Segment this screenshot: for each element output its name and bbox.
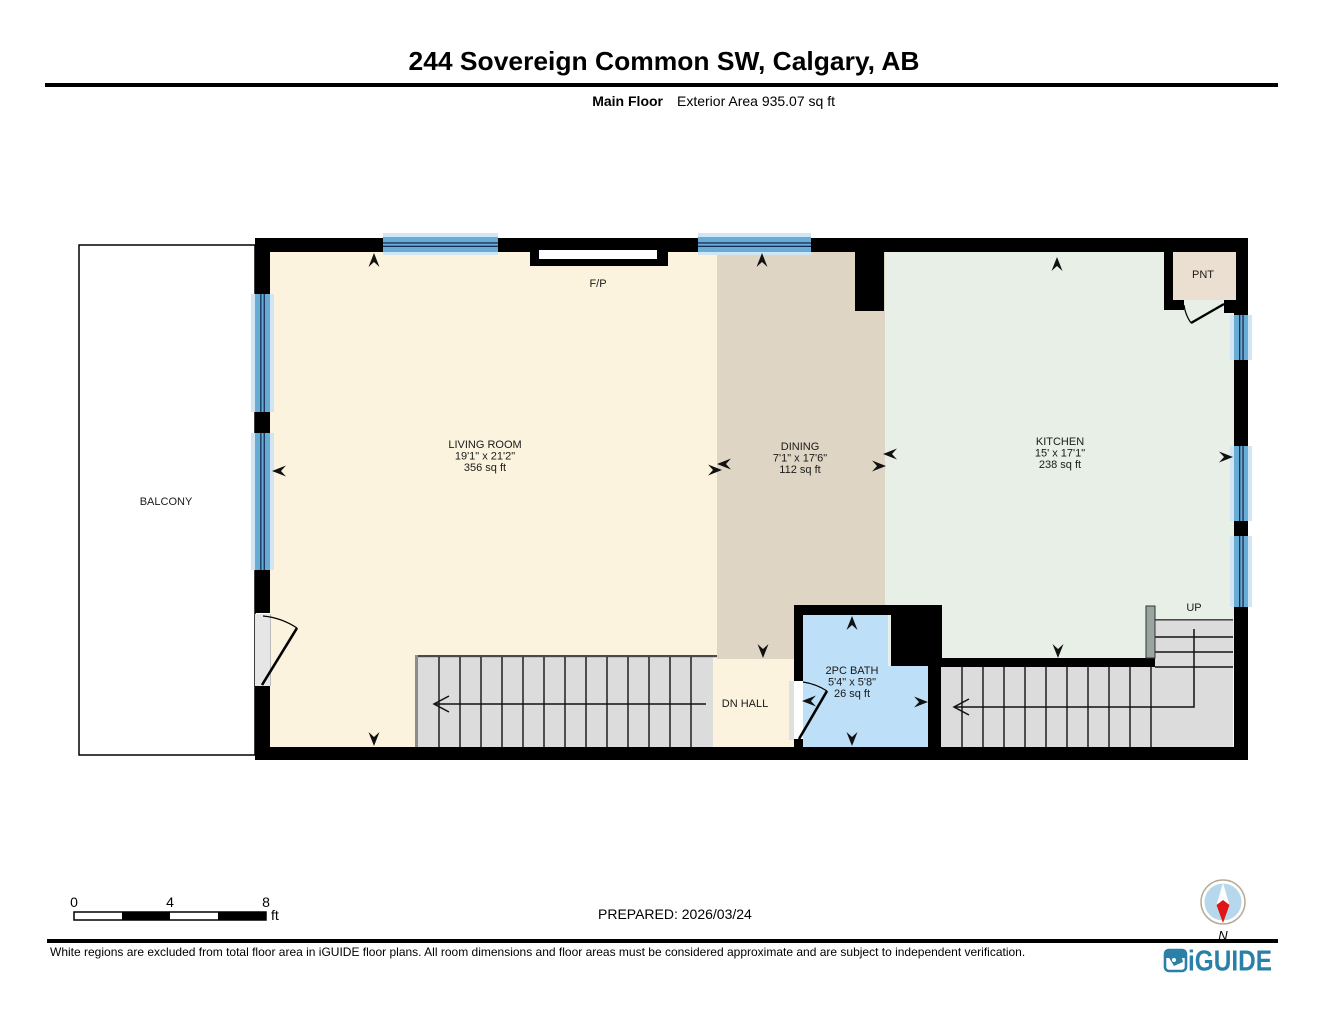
svg-text:Main Floor: Main Floor: [592, 93, 663, 109]
svg-text:BALCONY: BALCONY: [140, 496, 193, 508]
svg-text:244 Sovereign Common SW, Calga: 244 Sovereign Common SW, Calgary, AB: [409, 46, 920, 76]
svg-text:0: 0: [70, 894, 78, 910]
svg-text:PREPARED: 2026/03/24: PREPARED: 2026/03/24: [598, 906, 752, 922]
svg-text:Exterior Area 935.07 sq ft: Exterior Area 935.07 sq ft: [677, 93, 835, 109]
svg-text:UP: UP: [1186, 602, 1201, 614]
svg-text:5'4" x 5'8": 5'4" x 5'8": [828, 677, 876, 689]
svg-text:4: 4: [166, 894, 174, 910]
svg-text:iGUIDE: iGUIDE: [1188, 946, 1272, 978]
svg-text:F/P: F/P: [589, 278, 606, 290]
svg-text:ft: ft: [271, 907, 279, 923]
svg-text:112 sq ft: 112 sq ft: [779, 464, 820, 476]
svg-text:DINING: DINING: [781, 441, 820, 453]
svg-text:DN HALL: DN HALL: [722, 698, 768, 710]
svg-text:19'1" x 21'2": 19'1" x 21'2": [455, 451, 515, 463]
svg-text:8: 8: [262, 894, 270, 910]
svg-text:PNT: PNT: [1192, 269, 1214, 281]
svg-text:LIVING ROOM: LIVING ROOM: [448, 439, 521, 451]
svg-text:2PC BATH: 2PC BATH: [826, 665, 879, 677]
svg-text:KITCHEN: KITCHEN: [1036, 436, 1084, 448]
svg-text:White regions are excluded fro: White regions are excluded from total fl…: [50, 945, 1025, 959]
svg-text:7'1" x 17'6": 7'1" x 17'6": [773, 453, 827, 465]
svg-text:15' x 17'1": 15' x 17'1": [1035, 448, 1085, 460]
svg-text:26 sq ft: 26 sq ft: [834, 688, 870, 700]
svg-text:238 sq ft: 238 sq ft: [1039, 459, 1081, 471]
svg-text:356 sq ft: 356 sq ft: [464, 462, 506, 474]
